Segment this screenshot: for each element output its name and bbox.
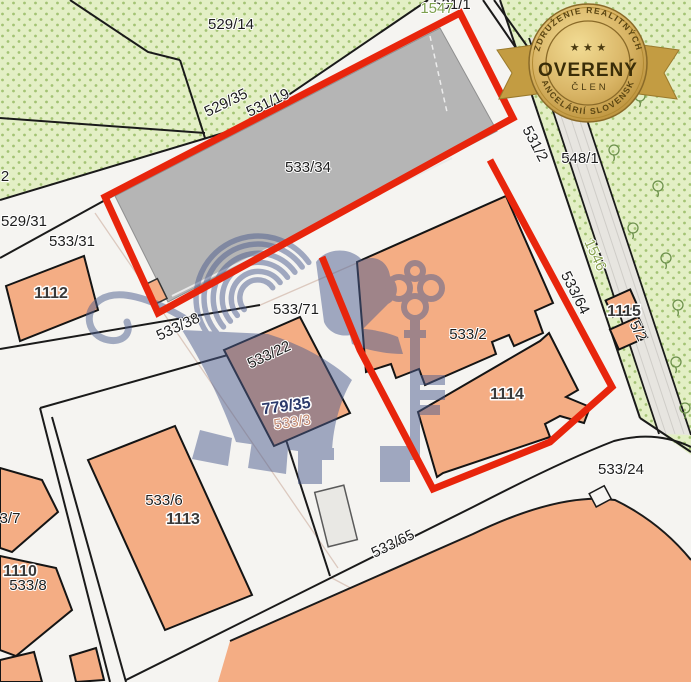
- parcel-label-533-2: 533/2: [449, 326, 487, 343]
- parcel-label-533-71: 533/71: [273, 301, 319, 318]
- parcel-label-533-8: 533/8: [9, 577, 47, 594]
- parcel-label-1113: 1113: [166, 511, 200, 528]
- map-canvas: 529/14531/115472529/31533/31529/35531/19…: [0, 0, 691, 682]
- parcel-label-529-31: 529/31: [1, 213, 47, 230]
- parcel-label-1115: 1115: [607, 303, 641, 320]
- badge-stars: ★ ★ ★: [570, 41, 607, 54]
- parcel-label-2: 2: [1, 168, 9, 185]
- parcel-label-1112: 1112: [34, 285, 68, 302]
- badge-sub-text: ČLEN: [571, 82, 608, 93]
- parcel-label-533-24: 533/24: [598, 461, 644, 478]
- parcel-label-533-6: 533/6: [145, 492, 183, 509]
- parcel-label-1547: 1547: [420, 0, 453, 17]
- parcel-label-533-31: 533/31: [49, 233, 95, 250]
- parcel-label-533-34: 533/34: [285, 159, 331, 176]
- badge-main-text: OVERENÝ: [538, 59, 638, 81]
- parcel-label-529-14: 529/14: [208, 16, 254, 33]
- parcel-label-3-7: 3/7: [0, 510, 20, 527]
- parcel-label-1114: 1114: [490, 386, 524, 403]
- cadastral-map: 529/14531/115472529/31533/31529/35531/19…: [0, 0, 691, 682]
- parcel-label-548-1: 548/1: [561, 150, 599, 167]
